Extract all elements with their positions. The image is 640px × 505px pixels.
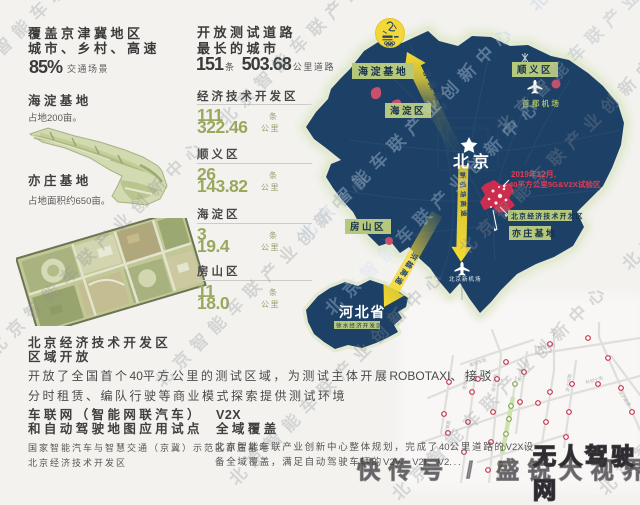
svg-text:亦庄基地: 亦庄基地 (512, 228, 557, 239)
svg-text:科创十街: 科创十街 (585, 374, 605, 386)
svg-text:海淀基地: 海淀基地 (358, 65, 408, 78)
svg-text:北京经济技术开发区: 北京经济技术开发区 (511, 212, 584, 221)
svg-text:房山区: 房山区 (350, 221, 386, 233)
svg-text:北京新机场: 北京新机场 (449, 275, 482, 283)
